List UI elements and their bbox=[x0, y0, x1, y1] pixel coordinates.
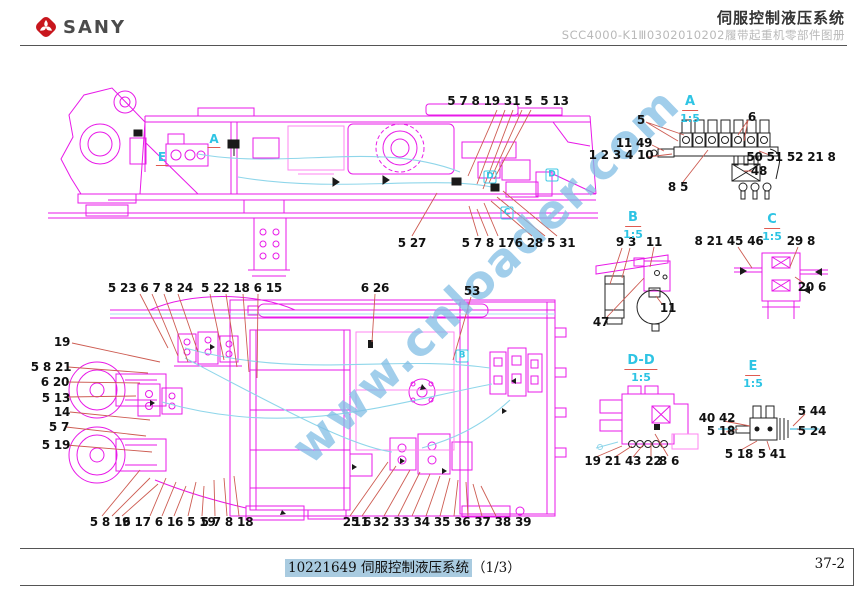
part-callout: 8 5 bbox=[668, 180, 688, 194]
part-callout: 19 21 43 22 bbox=[584, 454, 661, 468]
part-callout: 5 24 bbox=[798, 424, 826, 438]
part-callout: 11 bbox=[646, 235, 662, 249]
part-callout: 50 51 52 21 8 bbox=[746, 150, 835, 164]
document-title-line: 10221649 伺服控制液压系统（1/3） bbox=[285, 556, 521, 576]
part-callout: 5 13 bbox=[42, 391, 70, 405]
doc-number: 10221649 bbox=[288, 560, 357, 576]
part-callout: 14 bbox=[54, 405, 70, 419]
part-callout: 5 8 21 bbox=[31, 360, 72, 374]
detail-view-label: D-D1:5 bbox=[624, 349, 657, 384]
detail-dd-drawing bbox=[592, 378, 707, 466]
part-callout: 11 bbox=[660, 301, 676, 315]
detail-view-label: B1:5 bbox=[623, 206, 643, 241]
drawing-area: www.cnloader.com 5 7 8 19 31 5 5 135 275… bbox=[0, 0, 867, 608]
part-callout: 5 27 bbox=[398, 236, 426, 250]
section-marker: C bbox=[501, 207, 514, 220]
part-callout: 1 2 3 4 10 bbox=[589, 148, 654, 162]
detail-view-label: A1:5 bbox=[680, 90, 700, 125]
detail-view-label: E1:5 bbox=[743, 355, 763, 390]
doc-id-highlight: 10221649 伺服控制液压系统 bbox=[285, 559, 472, 577]
part-callout: 19 bbox=[54, 335, 70, 349]
plan-view-drawing bbox=[50, 288, 570, 528]
part-callout: 5 23 6 7 8 24 5 22 18 6 15 bbox=[108, 281, 282, 295]
part-callout: 53 bbox=[464, 284, 480, 298]
part-callout: 5 41 bbox=[758, 447, 786, 461]
section-marker: D bbox=[546, 169, 559, 182]
part-callout: 5 7 bbox=[49, 420, 69, 434]
part-callout: 29 8 bbox=[787, 234, 815, 248]
part-callout: 8 6 bbox=[659, 454, 679, 468]
part-callout: 6 28 5 31 bbox=[515, 236, 576, 250]
part-callout: 5 7 8 18 bbox=[201, 515, 254, 529]
part-callout: 5 19 bbox=[42, 438, 70, 452]
page: SANY 伺服控制液压系统 SCC4000-K1Ⅲ0302010202履带起重机… bbox=[0, 0, 867, 608]
part-callout: 47 bbox=[593, 315, 609, 329]
section-marker: A bbox=[207, 132, 220, 148]
section-marker: B bbox=[456, 350, 469, 363]
part-callout: 5 44 bbox=[798, 404, 826, 418]
page-number: 37-2 bbox=[815, 556, 845, 572]
part-callout: 5 bbox=[637, 113, 645, 127]
section-marker: E bbox=[156, 150, 168, 166]
doc-title: 伺服控制液压系统 bbox=[361, 560, 469, 576]
part-callout: 40 42 bbox=[699, 411, 736, 425]
part-callout: 5 18 bbox=[725, 447, 753, 461]
part-callout: 48 bbox=[751, 164, 767, 178]
part-callout: 20 6 bbox=[798, 280, 826, 294]
part-callout: 6 bbox=[748, 110, 756, 124]
part-callout: 11 32 33 34 35 36 37 38 39 bbox=[353, 515, 532, 529]
part-callout: 8 21 45 46 bbox=[695, 234, 764, 248]
part-callout: 5 7 8 17 bbox=[462, 236, 515, 250]
part-callout: 6 26 bbox=[361, 281, 389, 295]
part-callout: 6 20 bbox=[41, 375, 69, 389]
part-callout: 5 18 bbox=[707, 424, 735, 438]
sheet-index: （1/3） bbox=[472, 560, 521, 576]
side-view-drawing bbox=[48, 82, 598, 287]
part-callout: 5 7 8 19 31 5 5 13 bbox=[447, 94, 568, 108]
section-marker: D bbox=[484, 171, 497, 184]
detail-view-label: C1:5 bbox=[762, 208, 782, 243]
